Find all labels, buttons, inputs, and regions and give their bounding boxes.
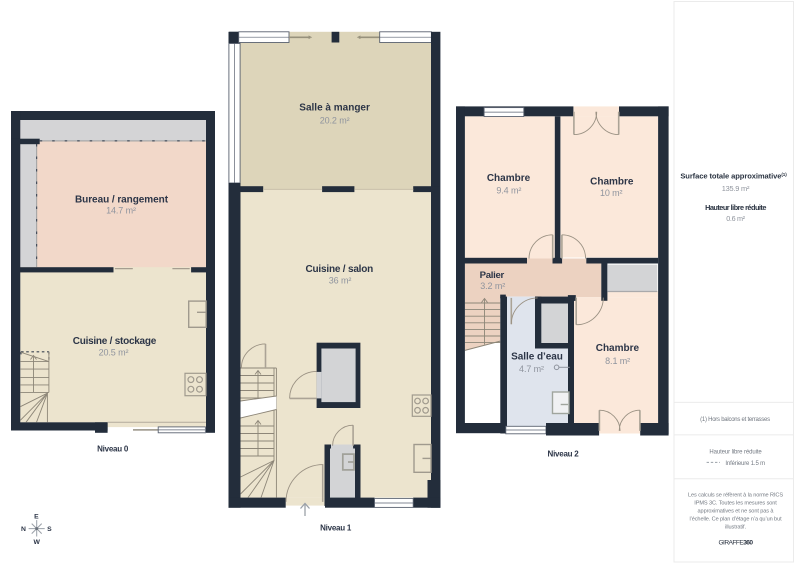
svg-text:approximatives et ne sont pas: approximatives et ne sont pas à bbox=[698, 509, 775, 515]
svg-text:3.2 m²: 3.2 m² bbox=[480, 281, 505, 291]
svg-text:Palier: Palier bbox=[480, 270, 505, 281]
svg-text:Salle à manger: Salle à manger bbox=[299, 103, 370, 114]
svg-text:Hauteur libre réduite: Hauteur libre réduite bbox=[705, 203, 766, 212]
svg-text:36 m²: 36 m² bbox=[329, 275, 352, 285]
svg-text:135.9 m²: 135.9 m² bbox=[722, 184, 750, 193]
svg-text:0.6 m²: 0.6 m² bbox=[726, 214, 745, 223]
svg-text:Bureau / rangement: Bureau / rangement bbox=[75, 194, 169, 205]
svg-text:Chambre: Chambre bbox=[596, 343, 640, 354]
svg-text:20.2 m²: 20.2 m² bbox=[320, 115, 350, 125]
svg-text:Salle d’eau: Salle d’eau bbox=[511, 351, 563, 362]
svg-text:20.5 m²: 20.5 m² bbox=[99, 348, 129, 358]
svg-text:W: W bbox=[33, 539, 40, 546]
svg-text:10 m²: 10 m² bbox=[600, 188, 623, 198]
svg-text:Niveau 2: Niveau 2 bbox=[548, 450, 580, 459]
svg-text:GIRAFFE360: GIRAFFE360 bbox=[718, 539, 753, 546]
svg-text:S: S bbox=[47, 526, 52, 533]
svg-text:Les calculs se réfèrent à la n: Les calculs se réfèrent à la norme RICS bbox=[688, 493, 783, 499]
svg-text:8.1 m²: 8.1 m² bbox=[605, 356, 630, 366]
svg-text:Chambre: Chambre bbox=[590, 177, 634, 188]
svg-text:(1) Hors balcons et terrasses: (1) Hors balcons et terrasses bbox=[700, 417, 770, 423]
svg-text:Niveau 1: Niveau 1 bbox=[320, 524, 352, 533]
svg-text:Hauteur libre réduite: Hauteur libre réduite bbox=[709, 449, 762, 455]
svg-text:Cuisine / stockage: Cuisine / stockage bbox=[73, 336, 157, 347]
svg-text:N: N bbox=[21, 526, 26, 533]
svg-text:E: E bbox=[34, 513, 39, 520]
svg-text:14.7 m²: 14.7 m² bbox=[106, 206, 136, 216]
svg-text:IPMS 3C. Toutes les mesures so: IPMS 3C. Toutes les mesures sont bbox=[694, 501, 777, 507]
svg-text:Chambre: Chambre bbox=[487, 173, 531, 184]
svg-text:illustratif.: illustratif. bbox=[725, 525, 746, 531]
svg-text:Cuisine / salon: Cuisine / salon bbox=[306, 264, 374, 275]
svg-text:Inférieure 1.5 m: Inférieure 1.5 m bbox=[725, 461, 765, 467]
svg-text:9.4 m²: 9.4 m² bbox=[496, 186, 521, 196]
svg-text:Niveau 0: Niveau 0 bbox=[97, 444, 129, 453]
svg-text:l’échelle. Ce plan d’étage n’a: l’échelle. Ce plan d’étage n’a qu’un but bbox=[689, 517, 782, 523]
svg-text:4.7 m²: 4.7 m² bbox=[519, 364, 544, 374]
svg-text:Surface totale approximative(1: Surface totale approximative(1) bbox=[680, 172, 787, 181]
